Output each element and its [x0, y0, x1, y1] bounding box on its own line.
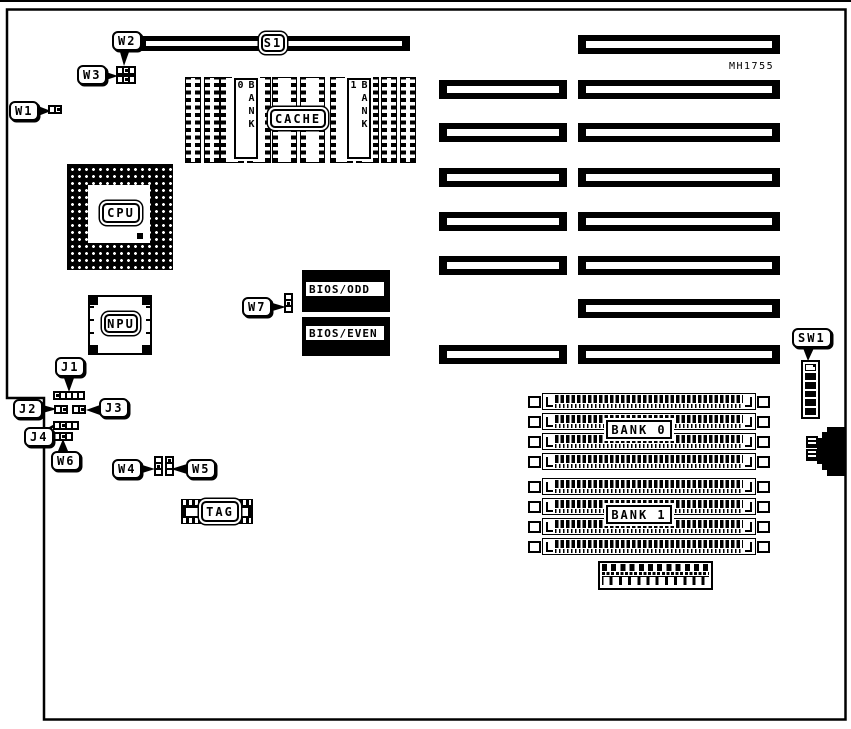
dip-switch-sw1 — [801, 360, 820, 419]
jumper-j4 — [53, 421, 79, 430]
expansion-slot-6-left — [439, 256, 567, 275]
callout-w4: W4 — [112, 459, 142, 479]
tag-label: TAG — [201, 501, 239, 522]
callout-w1: W1 — [9, 101, 39, 121]
sw1-position-4 — [805, 391, 816, 398]
motherboard-diagram: S1 W1 W2 W3 BANK 0 BANK 1 CACHE CPU — [0, 0, 851, 729]
jumper-j1 — [53, 391, 85, 400]
s1-label: S1 — [261, 34, 285, 52]
cache-chip-group-5 — [381, 77, 416, 163]
callout-sw1: SW1 — [792, 328, 832, 348]
callout-j2: J2 — [13, 399, 43, 419]
cache-bank1-label: BANK 1 — [347, 78, 371, 159]
jumper-w1 — [48, 105, 62, 114]
jumper-j2 — [54, 405, 68, 414]
cpu-label: CPU — [102, 203, 140, 223]
keyboard-connector — [806, 426, 846, 477]
board-outline — [7, 10, 846, 720]
npu-label: NPU — [104, 314, 138, 333]
memory-bank1-label: BANK 1 — [606, 505, 672, 524]
callout-w2: W2 — [112, 31, 142, 51]
expansion-slot-5-right — [578, 212, 780, 231]
j3-leader — [86, 405, 100, 415]
w2-leader — [120, 52, 129, 66]
jumper-j3 — [72, 405, 86, 414]
jumper-w5 — [165, 456, 174, 476]
expansion-slot-2-left — [439, 80, 567, 99]
sw1-position-1 — [805, 364, 816, 371]
jumper-w7 — [284, 293, 293, 313]
expansion-slot-8-right — [578, 345, 780, 364]
simm-socket-bank0-4 — [528, 453, 770, 470]
power-connector — [598, 561, 713, 590]
keyboard-connector-pins-1 — [806, 436, 818, 448]
jumper-w4 — [154, 456, 163, 476]
simm-socket-bank1-4 — [528, 538, 770, 555]
jumper-w6 — [53, 432, 73, 441]
callout-w3: W3 — [77, 65, 107, 85]
expansion-slot-4-left — [439, 168, 567, 187]
callout-w7: W7 — [242, 297, 272, 317]
jumper-w2 — [116, 66, 136, 75]
sw1-position-3 — [805, 382, 816, 389]
simm-socket-bank1-1 — [528, 478, 770, 495]
sw1-position-6 — [805, 408, 816, 415]
sw1-position-2 — [805, 373, 816, 380]
expansion-slot-3-right — [578, 123, 780, 142]
expansion-slot-6-right — [578, 256, 780, 275]
bios-odd-chip: BIOS/ODD — [302, 270, 390, 312]
part-number-label: MH1755 — [729, 61, 774, 72]
expansion-slot-5-left — [439, 212, 567, 231]
jumper-w3 — [116, 75, 136, 84]
j1-leader — [64, 378, 74, 392]
bios-even-label: BIOS/EVEN — [306, 326, 384, 340]
expansion-slot-4-right — [578, 168, 780, 187]
bios-even-chip: BIOS/EVEN — [302, 317, 390, 356]
callout-j1: J1 — [55, 357, 85, 377]
cache-label: CACHE — [270, 109, 326, 128]
memory-bank0-label: BANK 0 — [606, 420, 672, 439]
bios-odd-label: BIOS/ODD — [306, 282, 384, 296]
cache-chip-group-1 — [185, 77, 220, 163]
board-outline-and-leader-lines — [0, 0, 851, 729]
sw1-position-5 — [805, 399, 816, 406]
callout-w5: W5 — [186, 459, 216, 479]
cpu-pin1-marker — [137, 233, 143, 239]
expansion-slot-1 — [578, 35, 780, 54]
keyboard-connector-pins-2 — [806, 449, 818, 461]
cache-bank0-label: BANK 0 — [234, 78, 258, 159]
callout-j4: J4 — [24, 427, 54, 447]
expansion-slot-8-left — [439, 345, 567, 364]
expansion-slot-3-left — [439, 123, 567, 142]
callout-w6: W6 — [51, 451, 81, 471]
expansion-slot-2-right — [578, 80, 780, 99]
callout-j3: J3 — [99, 398, 129, 418]
simm-socket-bank0-1 — [528, 393, 770, 410]
expansion-slot-7 — [578, 299, 780, 318]
